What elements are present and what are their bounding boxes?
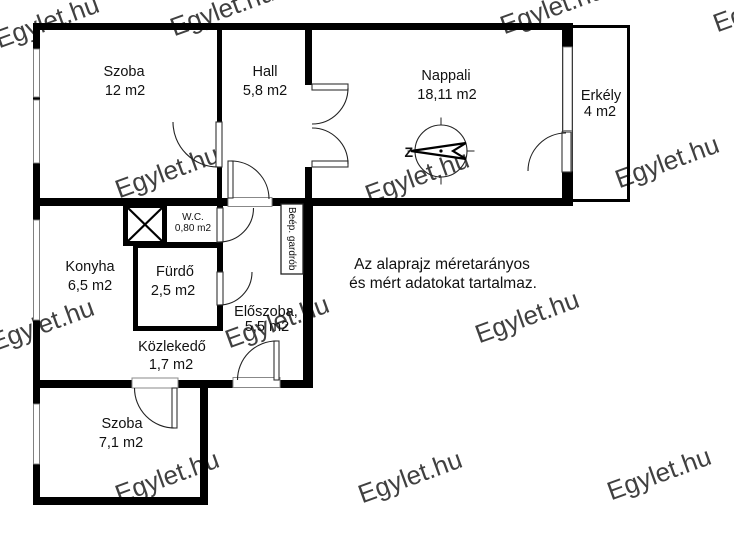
wall-bottom-middle-b bbox=[178, 380, 233, 388]
label-kozlekedo-area: 1,7 m2 bbox=[149, 357, 193, 373]
compass-center-dot bbox=[439, 149, 442, 152]
door-leaf-szoba71 bbox=[172, 388, 177, 428]
compass-letter: Z bbox=[404, 144, 413, 160]
wall-wc-right-stub bbox=[217, 204, 223, 208]
door-leaf-nappali-lower bbox=[312, 161, 348, 167]
wall-furdo-left bbox=[133, 248, 138, 331]
label-furdo-name: Fürdő bbox=[156, 264, 194, 280]
window-szoba12-lower bbox=[34, 100, 40, 163]
floor-plan-canvas: Egylet.huEgylet.huEgylet.huEgylet.huEgyl… bbox=[0, 0, 734, 537]
label-erkely-name: Erkély bbox=[581, 88, 622, 104]
door-threshold-szoba71 bbox=[132, 378, 178, 388]
label-furdo-area: 2,5 m2 bbox=[151, 283, 195, 299]
label-nappali-name: Nappali bbox=[421, 68, 470, 84]
label-wc-area: 0,80 m2 bbox=[175, 223, 212, 234]
label-gardrob-name: Beép. gardrób bbox=[286, 207, 297, 271]
wall-szoba-hall-upper bbox=[217, 30, 222, 122]
door-leaf-balcony bbox=[562, 132, 571, 172]
window-szoba12-upper bbox=[34, 49, 40, 97]
label-hall-name: Hall bbox=[253, 64, 278, 80]
wall-szoba71-right bbox=[200, 388, 208, 505]
wall-furdo-bottom bbox=[133, 326, 223, 331]
door-leaf-szoba12 bbox=[216, 122, 222, 167]
label-wc-name: W.C. bbox=[182, 212, 204, 223]
wall-furdo-right-upper bbox=[217, 248, 223, 272]
door-gap-hall-nappali bbox=[305, 85, 312, 167]
door-leaf-hall bbox=[228, 161, 233, 198]
wall-top bbox=[33, 23, 573, 30]
label-konyha-area: 6,5 m2 bbox=[68, 278, 112, 294]
scale-note-line2: és mért adatokat tartalmaz. bbox=[349, 275, 537, 292]
wall-erkely-top bbox=[573, 25, 630, 28]
wall-szoba71-bottom bbox=[33, 497, 208, 505]
label-kozlekedo-name: Közlekedő bbox=[138, 339, 206, 355]
window-konyha bbox=[34, 220, 40, 320]
label-hall-area: 5,8 m2 bbox=[243, 83, 287, 99]
wall-bottom-middle-c bbox=[280, 380, 313, 388]
door-threshold-hall bbox=[228, 198, 272, 207]
door-leaf-furdo bbox=[217, 272, 223, 305]
door-threshold-entrance bbox=[233, 378, 280, 388]
label-nappali-area: 18,11 m2 bbox=[417, 87, 476, 103]
floor-plan: Egylet.huEgylet.huEgylet.huEgylet.huEgyl… bbox=[0, 0, 734, 537]
label-erkely-area: 4 m2 bbox=[584, 104, 616, 120]
label-szoba12-name: Szoba bbox=[103, 64, 145, 80]
wall-hall-nappali-upper bbox=[305, 30, 312, 85]
scale-note-line1: Az alaprajz méretarányos bbox=[354, 256, 530, 273]
wall-eloszoba-right bbox=[303, 206, 313, 388]
wall-erkely-right bbox=[627, 25, 630, 202]
label-szoba71-name: Szoba bbox=[101, 416, 143, 432]
window-szoba71 bbox=[34, 404, 40, 464]
wall-erkely-bottom bbox=[573, 199, 630, 202]
label-eloszoba-area: 5,5 m2 bbox=[245, 319, 289, 335]
wall-szoba-hall-lower bbox=[217, 167, 222, 198]
label-konyha-name: Konyha bbox=[65, 259, 115, 275]
wall-bottom-middle-a bbox=[33, 380, 132, 388]
door-leaf-entrance bbox=[274, 341, 279, 380]
wall-hall-nappali-lower bbox=[305, 167, 312, 198]
label-szoba12-area: 12 m2 bbox=[105, 83, 145, 99]
door-leaf-wc bbox=[217, 208, 223, 242]
label-szoba71-area: 7,1 m2 bbox=[99, 435, 143, 451]
label-eloszoba-name: Előszoba, bbox=[234, 304, 298, 320]
wall-horizontal-mid-right bbox=[272, 198, 573, 206]
door-leaf-nappali-upper bbox=[312, 84, 348, 90]
